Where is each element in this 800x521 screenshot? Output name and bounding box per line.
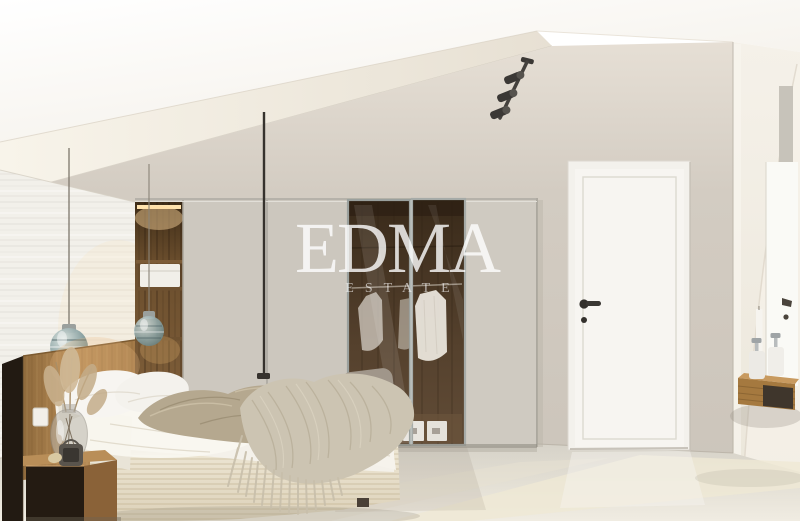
render-canvas: EDMA ESTATE — [0, 0, 800, 521]
door-keyhole — [581, 317, 587, 323]
shelf-open-compartment — [763, 385, 793, 409]
light-switch — [33, 408, 48, 426]
vase-highlight — [56, 420, 64, 444]
door-floor-reflection — [560, 451, 705, 508]
watermark-subtitle: ESTATE — [345, 281, 460, 296]
wardrobe-side-shadow — [537, 200, 543, 447]
door-handle-lever — [586, 301, 601, 306]
garment-right — [415, 290, 447, 361]
nightstand-front — [26, 466, 84, 521]
pillar-floor-shadow — [695, 469, 800, 487]
pendant-rod-fitting — [257, 373, 270, 379]
lantern-glass — [63, 448, 79, 462]
watermark: EDMA ESTATE — [295, 208, 501, 296]
closet-box-label-2 — [432, 428, 440, 434]
bed-side-panel-dark — [2, 356, 23, 521]
nightstand-floor-shadow — [26, 517, 121, 521]
bedroom-render: EDMA ESTATE — [0, 0, 800, 521]
nightstand-side — [84, 460, 117, 521]
door-leaf — [575, 169, 684, 447]
niche-led-glow — [135, 206, 183, 230]
storage-box — [140, 264, 180, 287]
interior-door — [568, 161, 690, 450]
bed-foot — [357, 498, 369, 507]
niche-shelf-2 — [136, 287, 183, 291]
watermark-title: EDMA — [295, 208, 501, 288]
mirror-top-sliver — [779, 86, 793, 162]
vase-neck — [62, 404, 76, 413]
mirror-reflection-knob — [783, 314, 788, 319]
door-bottom-shadow — [570, 448, 688, 449]
niche-shelf-1 — [136, 260, 183, 264]
